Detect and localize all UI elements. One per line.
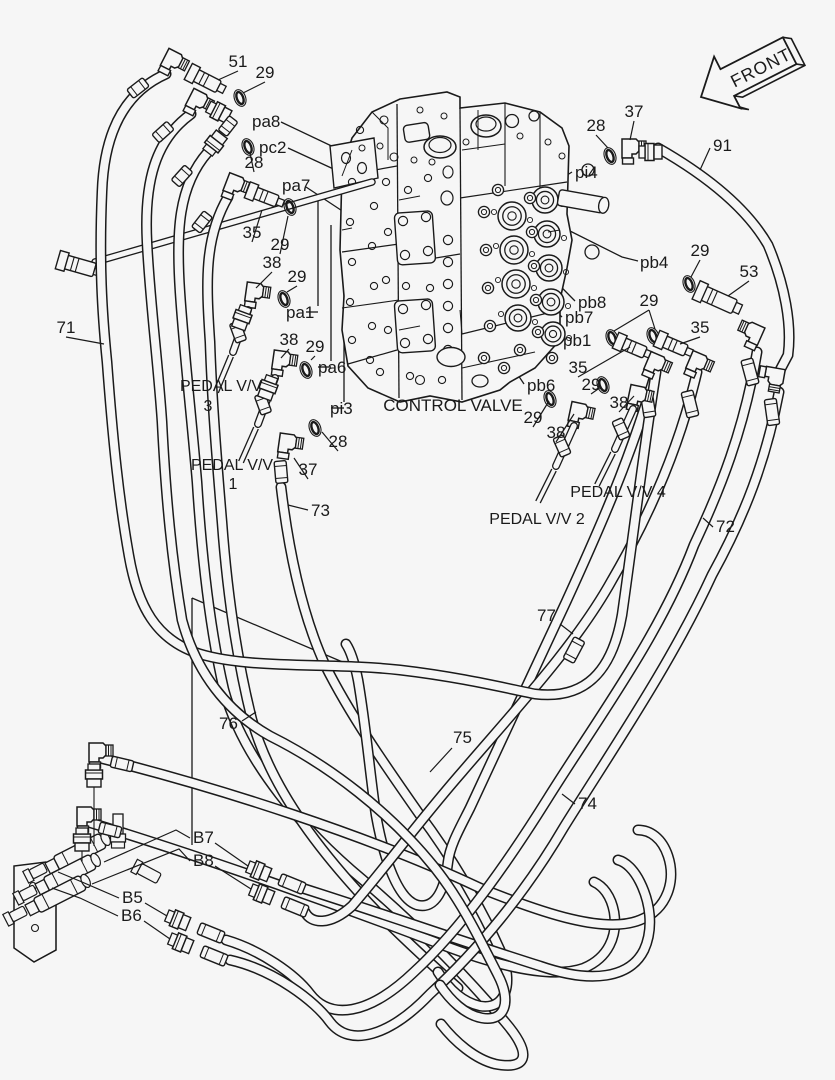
svg-text:29: 29 (306, 337, 325, 356)
svg-text:B8: B8 (193, 851, 214, 870)
svg-text:pb6: pb6 (527, 376, 555, 395)
svg-text:pa7: pa7 (282, 176, 310, 195)
svg-text:B5: B5 (122, 888, 143, 907)
svg-text:3: 3 (204, 398, 213, 415)
svg-text:53: 53 (740, 262, 759, 281)
svg-text:28: 28 (587, 116, 606, 135)
svg-text:pi4: pi4 (575, 163, 598, 182)
svg-text:75: 75 (453, 728, 472, 747)
svg-text:pi3: pi3 (330, 399, 353, 418)
svg-text:73: 73 (311, 501, 330, 520)
svg-text:29: 29 (691, 241, 710, 260)
svg-text:pa1: pa1 (286, 303, 314, 322)
svg-text:B7: B7 (193, 828, 214, 847)
svg-text:38: 38 (263, 253, 282, 272)
svg-text:77: 77 (537, 606, 556, 625)
svg-text:29: 29 (288, 267, 307, 286)
svg-text:38: 38 (610, 393, 629, 412)
svg-text:72: 72 (716, 517, 735, 536)
svg-text:CONTROL VALVE: CONTROL VALVE (383, 396, 523, 415)
svg-text:35: 35 (691, 318, 710, 337)
svg-text:29: 29 (640, 291, 659, 310)
svg-text:74: 74 (578, 794, 597, 813)
svg-text:29: 29 (582, 375, 601, 394)
svg-text:38: 38 (280, 330, 299, 349)
svg-text:PEDAL V/V 2: PEDAL V/V 2 (489, 511, 585, 528)
svg-text:PEDAL V/V: PEDAL V/V (191, 457, 273, 474)
svg-text:35: 35 (243, 223, 262, 242)
svg-text:29: 29 (524, 408, 543, 427)
svg-text:B6: B6 (121, 906, 142, 925)
svg-text:pb4: pb4 (640, 253, 668, 272)
svg-text:51: 51 (229, 52, 248, 71)
svg-text:37: 37 (625, 102, 644, 121)
svg-text:71: 71 (57, 318, 76, 337)
svg-text:76: 76 (219, 714, 238, 733)
svg-text:pb7: pb7 (565, 308, 593, 327)
svg-text:pa8: pa8 (252, 112, 280, 131)
svg-text:pa6: pa6 (318, 358, 346, 377)
svg-text:PEDAL V/V 4: PEDAL V/V 4 (570, 484, 666, 501)
svg-text:1: 1 (229, 476, 238, 493)
svg-text:91: 91 (713, 136, 732, 155)
svg-text:pb1: pb1 (563, 331, 591, 350)
svg-text:28: 28 (329, 432, 348, 451)
svg-text:29: 29 (256, 63, 275, 82)
svg-text:PEDAL V/V: PEDAL V/V (180, 378, 262, 395)
